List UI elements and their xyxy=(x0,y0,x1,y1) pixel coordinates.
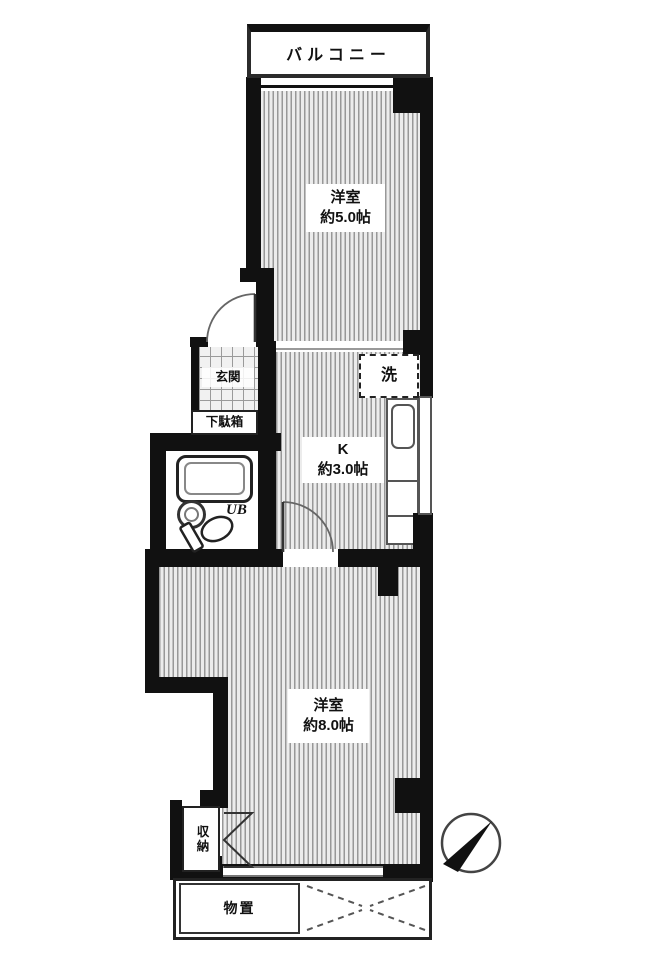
wall xyxy=(145,549,159,693)
wall xyxy=(190,337,208,347)
room-name: 洋室 xyxy=(313,696,343,716)
closet-label: 収納 xyxy=(193,825,210,854)
unit-bath-label: UB xyxy=(226,502,266,519)
front-door-swing-icon xyxy=(207,294,255,342)
wall xyxy=(213,693,228,800)
floor-plan: バルコニー 洋室 約5.0帖 玄関 下駄箱 洗 K 約3.0帖 UB 洋室 約8… xyxy=(0,0,670,966)
sliding-partition-band xyxy=(276,341,403,352)
counter-divider xyxy=(386,480,419,482)
wall xyxy=(240,268,274,282)
room-western-5-label: 洋室 約5.0帖 xyxy=(306,184,385,232)
storage-label: 物置 xyxy=(224,899,256,918)
room-size: 約5.0帖 xyxy=(320,208,371,228)
balcony-label: バルコニー xyxy=(286,41,391,65)
laundry-label: 洗 xyxy=(381,365,397,387)
balcony: バルコニー xyxy=(247,24,430,78)
wall xyxy=(258,341,276,563)
room-name: K xyxy=(338,440,349,460)
room-size: 約8.0帖 xyxy=(303,716,354,736)
kitchen-sink xyxy=(391,404,415,449)
room-western-8-label: 洋室 約8.0帖 xyxy=(288,689,369,743)
washbasin-inner xyxy=(184,507,199,522)
wall xyxy=(413,513,433,567)
wall xyxy=(256,281,274,347)
washing-machine-space: 洗 xyxy=(359,354,419,398)
balcony-window-band xyxy=(259,77,393,91)
kitchen-window xyxy=(418,396,432,515)
kitchen-label: K 約3.0帖 xyxy=(302,437,384,483)
bathtub-inner xyxy=(184,462,245,495)
bottom-window xyxy=(223,866,383,877)
room-name: 洋室 xyxy=(330,188,360,208)
balcony-window-sash xyxy=(259,85,393,88)
wall xyxy=(145,549,283,567)
wall xyxy=(150,433,166,563)
wall xyxy=(393,77,433,113)
shoe-cabinet-label: 下駄箱 xyxy=(191,410,258,435)
wall xyxy=(191,347,199,412)
closet-box: 収納 xyxy=(182,806,220,872)
entrance-label: 玄関 xyxy=(202,367,254,387)
pillar xyxy=(378,566,398,596)
wall xyxy=(246,77,261,270)
wall xyxy=(145,677,228,693)
room-size: 約3.0帖 xyxy=(318,460,369,480)
north-arrow-icon xyxy=(442,814,500,872)
sliding-partition-track xyxy=(276,348,403,350)
wall xyxy=(403,330,433,355)
wall xyxy=(420,513,433,882)
pillar xyxy=(395,778,422,813)
storage-shed-box: 物置 xyxy=(179,883,300,934)
